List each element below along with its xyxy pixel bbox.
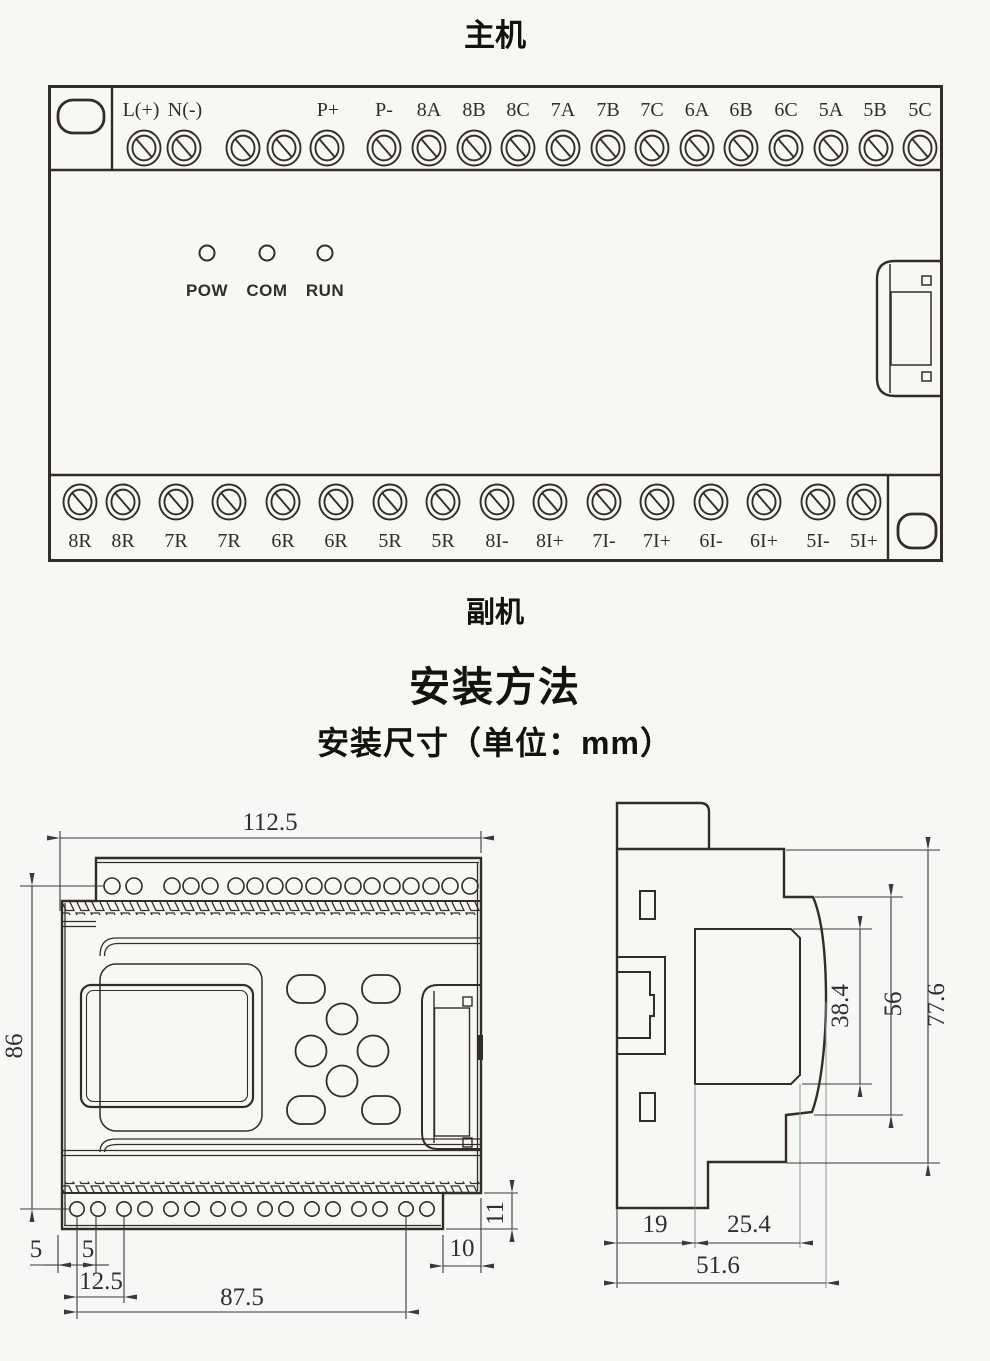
mount-hole-icon	[420, 1202, 434, 1216]
screw-slot-icon	[222, 493, 237, 510]
din-serration-top	[62, 902, 481, 915]
screw-slot-icon	[276, 493, 291, 510]
mount-hole-icon	[267, 878, 283, 894]
screw-slot-icon	[913, 139, 928, 156]
main-unit-drawing: L(+)N(-)P+P-8A8B8C7A7B7C6A6B6C5A5B5C 8R8…	[48, 85, 943, 563]
screw-slot-icon	[757, 493, 772, 510]
screw-slot-icon	[690, 139, 705, 156]
mount-hole-icon	[185, 1202, 199, 1216]
screw-slot-icon	[645, 139, 660, 156]
side-front-panel	[695, 929, 800, 1084]
screw-slot-icon	[116, 493, 131, 510]
dim-notch-height: 11	[482, 1201, 509, 1225]
mount-hole-icon	[247, 878, 263, 894]
screw-slot-icon	[597, 493, 612, 510]
mount-hole-icon	[399, 1202, 413, 1216]
mount-hole-icon	[164, 878, 180, 894]
dim-panel-height: 38.4	[827, 984, 854, 1028]
din-release-tab-bottom	[898, 514, 936, 548]
screw-slot-icon	[811, 493, 826, 510]
dim-body-height: 56	[880, 992, 907, 1017]
side-slot-bottom	[640, 1093, 655, 1121]
terminal-label: 7I+	[643, 530, 671, 552]
terminal-label: 5I-	[806, 530, 829, 552]
terminal-label: 8R	[68, 530, 92, 552]
side-outline	[617, 803, 826, 1208]
terminal-label: 6B	[729, 99, 752, 121]
bottom-terminal-labels: 8R8R7R7R6R6R5R5R8I-8I+7I-7I+6I-6I+5I-5I+	[68, 530, 878, 552]
mount-hole-icon	[232, 1202, 246, 1216]
screw-slot-icon	[383, 493, 398, 510]
mount-hole-icon	[403, 878, 419, 894]
screw-slot-icon	[137, 139, 152, 156]
mount-hole-icon	[423, 878, 439, 894]
top-terminal-screws	[128, 131, 937, 166]
screw-slot-icon	[277, 139, 292, 156]
terminal-label: 6A	[685, 99, 710, 121]
terminal-label: 6R	[324, 530, 348, 552]
screw-slot-icon	[177, 139, 192, 156]
dim-total-depth: 51.6	[696, 1252, 740, 1279]
terminal-label: 6R	[271, 530, 295, 552]
install-dimensions-heading: 安装尺寸（单位：mm）	[0, 718, 990, 764]
bottom-terminal-screws	[64, 485, 881, 520]
screw-slot-icon	[422, 139, 437, 156]
screw-slot-icon	[169, 493, 184, 510]
dim-clip-depth: 19	[643, 1211, 668, 1238]
led-labels: POWCOMRUN	[186, 281, 344, 300]
dim-pair-pitch: 12.5	[79, 1268, 123, 1295]
mount-hole-icon	[305, 1202, 319, 1216]
screw-slot-icon	[601, 139, 616, 156]
led-indicator-icons	[200, 246, 333, 261]
front-mount-holes	[70, 878, 478, 1216]
expansion-port-icon	[877, 261, 941, 396]
screw-slot-icon	[511, 139, 526, 156]
lcd-window	[81, 985, 253, 1107]
mount-hole-icon	[384, 878, 400, 894]
mount-hole-icon	[364, 878, 380, 894]
sub-unit-title: 副机	[0, 589, 990, 631]
mount-hole-icon	[258, 1202, 272, 1216]
screw-slot-icon	[556, 139, 571, 156]
din-release-tab-top	[58, 100, 104, 133]
terminal-label: 5R	[378, 530, 402, 552]
terminal-label: 8A	[417, 99, 442, 121]
front-view-drawing: 112.5 86 5 5 12.5 87.5 10 11	[0, 795, 540, 1340]
mount-hole-icon	[228, 878, 244, 894]
front-expansion-port-icon	[422, 985, 483, 1149]
mount-hole-icon	[70, 1202, 84, 1216]
din-serration-bottom	[62, 1182, 481, 1193]
terminal-label: 6C	[774, 99, 797, 121]
terminal-label: 8B	[462, 99, 485, 121]
mount-hole-icon	[211, 1202, 225, 1216]
terminal-label: 8I-	[485, 530, 508, 552]
screw-slot-icon	[329, 493, 344, 510]
screw-slot-icon	[436, 493, 451, 510]
terminal-label: 6I-	[699, 530, 722, 552]
terminal-label: P+	[317, 99, 339, 121]
dim-total-height: 77.6	[923, 983, 950, 1027]
mount-hole-icon	[345, 878, 361, 894]
side-slot-top	[640, 891, 655, 919]
mount-hole-icon	[164, 1202, 178, 1216]
mount-hole-icon	[286, 878, 302, 894]
terminal-label: 8C	[506, 99, 529, 121]
screw-slot-icon	[320, 139, 335, 156]
top-terminal-labels: L(+)N(-)P+P-8A8B8C7A7B7C6A6B6C5A5B5C	[123, 99, 932, 121]
terminal-label: 5A	[819, 99, 844, 121]
terminal-label: L(+)	[123, 99, 160, 121]
keypad-buttons	[287, 975, 400, 1124]
side-dimension-labels: 19 25.4 51.6 38.4 56 77.6	[643, 983, 951, 1279]
mount-hole-icon	[104, 878, 120, 894]
terminal-label: 5R	[431, 530, 455, 552]
dim-height: 86	[1, 1034, 28, 1059]
led-label: RUN	[306, 281, 344, 300]
mount-hole-icon	[91, 1202, 105, 1216]
terminal-label: 5C	[908, 99, 931, 121]
mount-hole-icon	[126, 878, 142, 894]
page-canvas: 主机 L(+)N(-)P+P-8A8B8	[0, 0, 990, 1361]
mount-hole-icon	[117, 1202, 131, 1216]
terminal-label: 5I+	[850, 530, 878, 552]
screw-slot-icon	[734, 139, 749, 156]
dim-hole-gap: 5	[82, 1236, 95, 1263]
terminal-label: 8R	[111, 530, 135, 552]
dim-width: 112.5	[242, 809, 297, 836]
mount-hole-icon	[373, 1202, 387, 1216]
terminal-label: 7R	[164, 530, 188, 552]
terminal-label: 7I-	[592, 530, 615, 552]
mount-hole-icon	[462, 878, 478, 894]
terminal-label: 5B	[863, 99, 886, 121]
mount-hole-icon	[202, 878, 218, 894]
screw-slot-icon	[779, 139, 794, 156]
terminal-label: 7C	[640, 99, 663, 121]
mount-hole-icon	[325, 878, 341, 894]
screw-slot-icon	[650, 493, 665, 510]
dim-face-depth: 25.4	[727, 1211, 771, 1238]
dim-mount-span: 87.5	[220, 1284, 264, 1311]
terminal-label: 8I+	[536, 530, 564, 552]
mount-hole-icon	[183, 878, 199, 894]
screw-slot-icon	[377, 139, 392, 156]
led-label: COM	[246, 281, 287, 300]
main-unit-title: 主机	[0, 10, 990, 55]
terminal-label: P-	[375, 99, 393, 121]
screw-slot-icon	[824, 139, 839, 156]
screw-slot-icon	[869, 139, 884, 156]
screw-slot-icon	[857, 493, 872, 510]
mount-hole-icon	[352, 1202, 366, 1216]
terminal-label: 7A	[551, 99, 576, 121]
screw-slot-icon	[73, 493, 88, 510]
screw-slot-icon	[490, 493, 505, 510]
terminal-label: 7B	[596, 99, 619, 121]
screw-slot-icon	[704, 493, 719, 510]
mount-hole-icon	[442, 878, 458, 894]
dim-notch-width: 10	[450, 1235, 475, 1262]
mount-hole-icon	[138, 1202, 152, 1216]
led-label: POW	[186, 281, 229, 300]
screw-slot-icon	[467, 139, 482, 156]
mount-hole-icon	[306, 878, 322, 894]
terminal-label: 7R	[217, 530, 241, 552]
screw-slot-icon	[236, 139, 251, 156]
mount-hole-icon	[326, 1202, 340, 1216]
mount-hole-icon	[279, 1202, 293, 1216]
terminal-label: N(-)	[168, 99, 202, 121]
side-view-drawing: 19 25.4 51.6 38.4 56 77.6	[560, 790, 990, 1305]
install-method-heading: 安装方法	[0, 653, 990, 713]
screw-slot-icon	[543, 493, 558, 510]
side-extension-lines	[695, 1002, 826, 1288]
terminal-label: 6I+	[750, 530, 778, 552]
front-outline	[62, 858, 483, 1229]
dim-edge-offset: 5	[30, 1236, 43, 1263]
